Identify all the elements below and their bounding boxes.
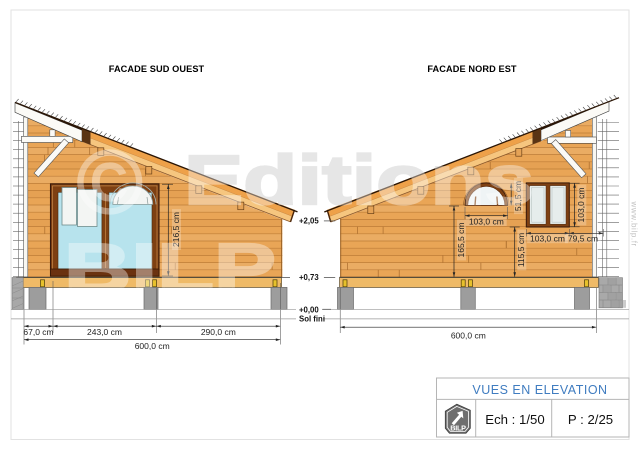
svg-text:290,0 cm: 290,0 cm [201,327,236,337]
svg-text:600,0 cm: 600,0 cm [451,331,486,341]
svg-text:©: © [77,132,143,232]
svg-text:600,0 cm: 600,0 cm [135,341,170,351]
svg-text:115,5 cm: 115,5 cm [516,233,526,267]
svg-text:103,0 cm: 103,0 cm [530,234,565,244]
svg-text:www.bilp.fr: www.bilp.fr [630,201,639,247]
svg-text:Editions: Editions [184,141,534,219]
svg-text:Sol fini: Sol fini [299,315,325,324]
svg-text:67,0 cm: 67,0 cm [23,327,53,337]
svg-text:FACADE NORD EST: FACADE NORD EST [427,64,517,74]
svg-text:Ech : 1/50: Ech : 1/50 [485,412,544,427]
svg-text:P : 2/25: P : 2/25 [568,412,613,427]
svg-text:+0,00: +0,00 [299,305,319,314]
svg-text:+0,73: +0,73 [299,273,319,282]
svg-text:VUES EN ELEVATION: VUES EN ELEVATION [472,383,607,397]
svg-text:79,5 cm: 79,5 cm [568,234,598,244]
svg-text:165,5 cm: 165,5 cm [456,223,466,258]
svg-text:103,0 cm: 103,0 cm [576,188,586,223]
svg-text:BILP: BILP [450,424,466,433]
svg-text:243,0 cm: 243,0 cm [87,327,122,337]
svg-text:FACADE SUD OUEST: FACADE SUD OUEST [109,64,205,74]
